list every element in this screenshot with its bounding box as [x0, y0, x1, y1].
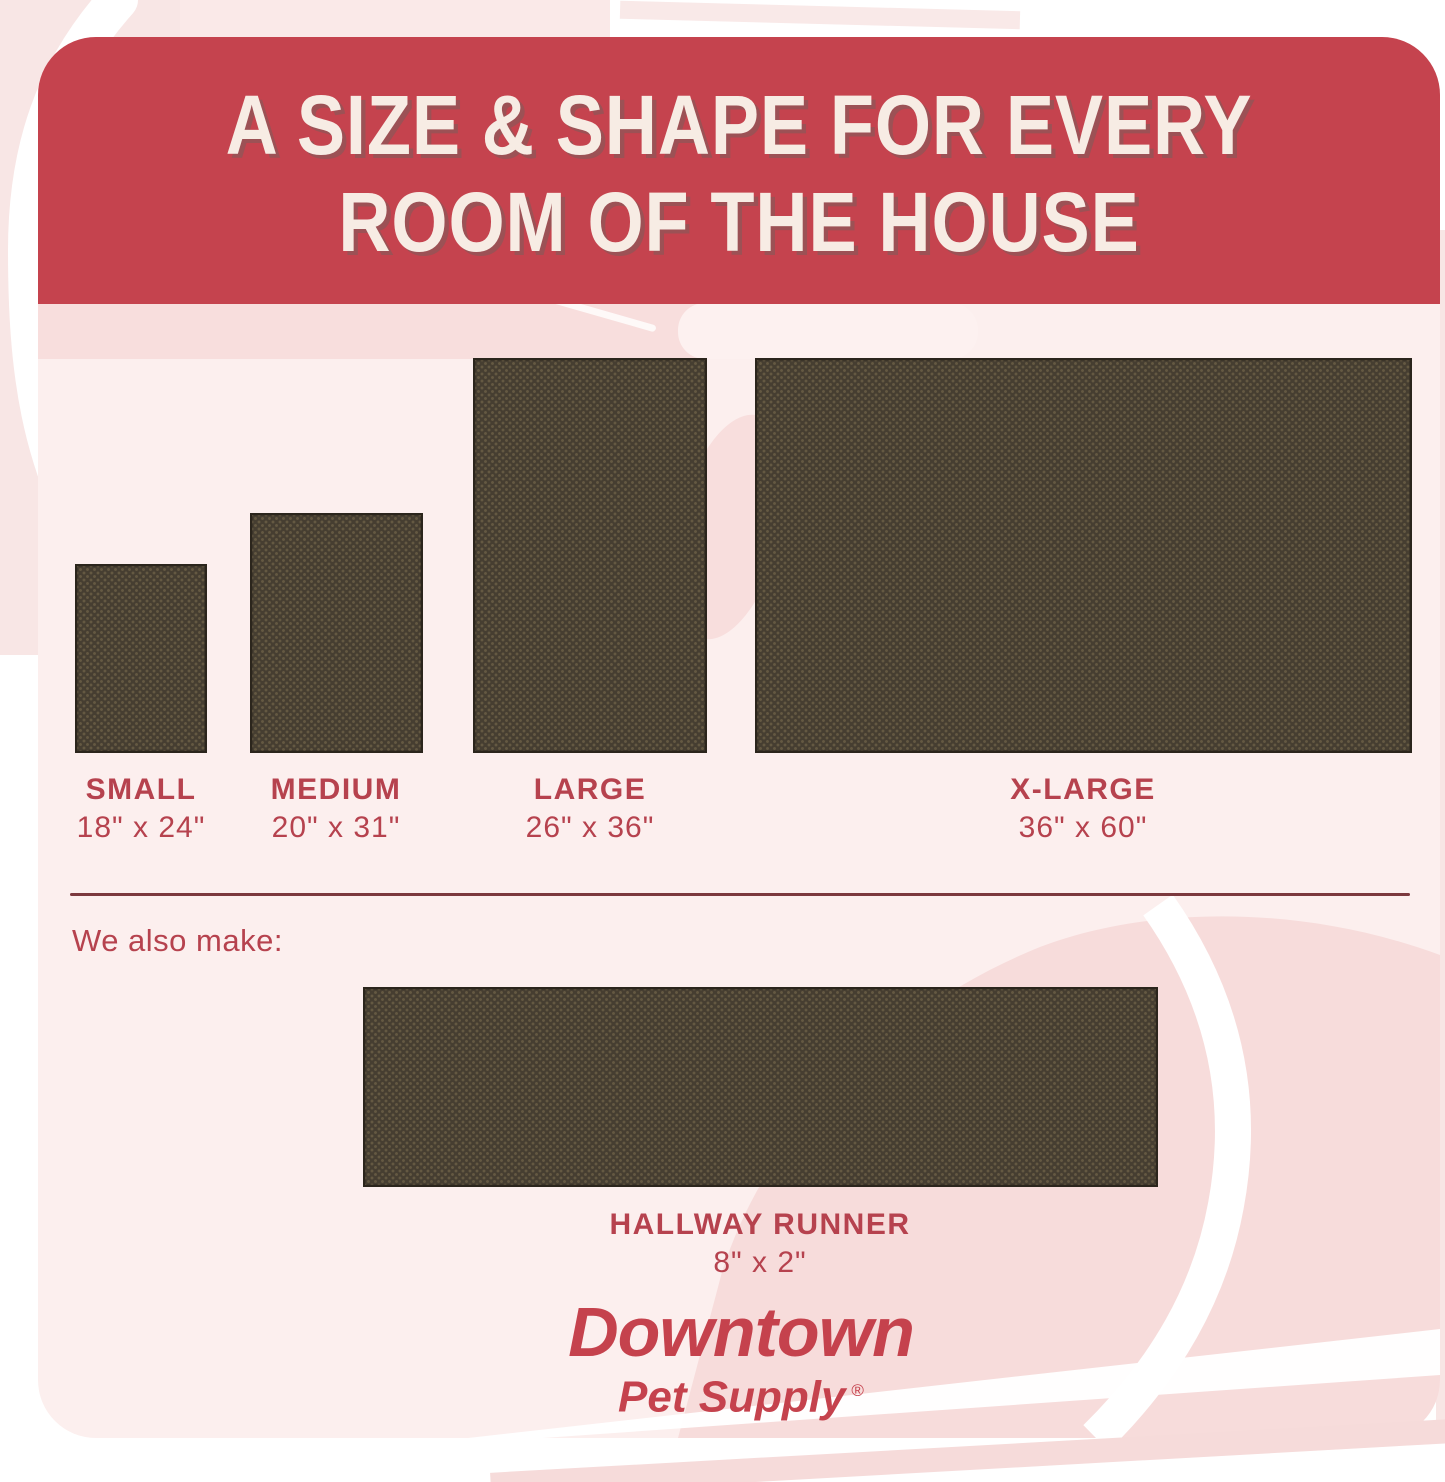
- header-banner: A SIZE & SHAPE FOR EVERY ROOM OF THE HOU…: [38, 37, 1440, 304]
- brand-tagline: Pet Supply®: [568, 1367, 914, 1422]
- brand-name: Downtown: [568, 1297, 914, 1367]
- also-make-label: We also make:: [72, 923, 283, 959]
- size-label-medium: MEDIUM 20" x 31": [271, 773, 402, 845]
- size-name: X-LARGE: [1010, 773, 1156, 807]
- size-dimensions: 20" x 31": [271, 811, 402, 845]
- brand-logo: Downtown Pet Supply®: [568, 1297, 914, 1422]
- section-divider: [70, 893, 1410, 896]
- page-title-line1: A SIZE & SHAPE FOR EVERY: [136, 77, 1342, 174]
- rug-swatch-xlarge: [755, 358, 1412, 753]
- size-dimensions: 8" x 2": [609, 1246, 910, 1280]
- page-title: A SIZE & SHAPE FOR EVERY ROOM OF THE HOU…: [136, 77, 1342, 272]
- background-pink-top-strip: [180, 0, 610, 37]
- rug-swatch-hallway-runner: [363, 987, 1158, 1187]
- rug-swatch-small: [75, 564, 207, 753]
- infographic-page: A SIZE & SHAPE FOR EVERY ROOM OF THE HOU…: [0, 0, 1445, 1482]
- size-label-xlarge: X-LARGE 36" x 60": [1010, 773, 1156, 845]
- size-name: SMALL: [77, 773, 206, 807]
- size-name: MEDIUM: [271, 773, 402, 807]
- size-label-large: LARGE 26" x 36": [526, 773, 655, 845]
- size-label-small: SMALL 18" x 24": [77, 773, 206, 845]
- size-dimensions: 36" x 60": [1010, 811, 1156, 845]
- infographic-card: A SIZE & SHAPE FOR EVERY ROOM OF THE HOU…: [38, 37, 1440, 1438]
- registered-trademark-symbol: ®: [851, 1381, 864, 1400]
- size-dimensions: 18" x 24": [77, 811, 206, 845]
- size-name: HALLWAY RUNNER: [609, 1208, 910, 1242]
- background-pink-streak: [620, 1, 1020, 29]
- size-name: LARGE: [526, 773, 655, 807]
- page-title-line2: ROOM OF THE HOUSE: [136, 174, 1342, 271]
- size-dimensions: 26" x 36": [526, 811, 655, 845]
- size-label-hallway-runner: HALLWAY RUNNER 8" x 2": [609, 1208, 910, 1280]
- brand-tagline-text: Pet Supply: [618, 1373, 845, 1422]
- rug-swatch-large: [473, 358, 707, 753]
- rug-swatch-medium: [250, 513, 423, 753]
